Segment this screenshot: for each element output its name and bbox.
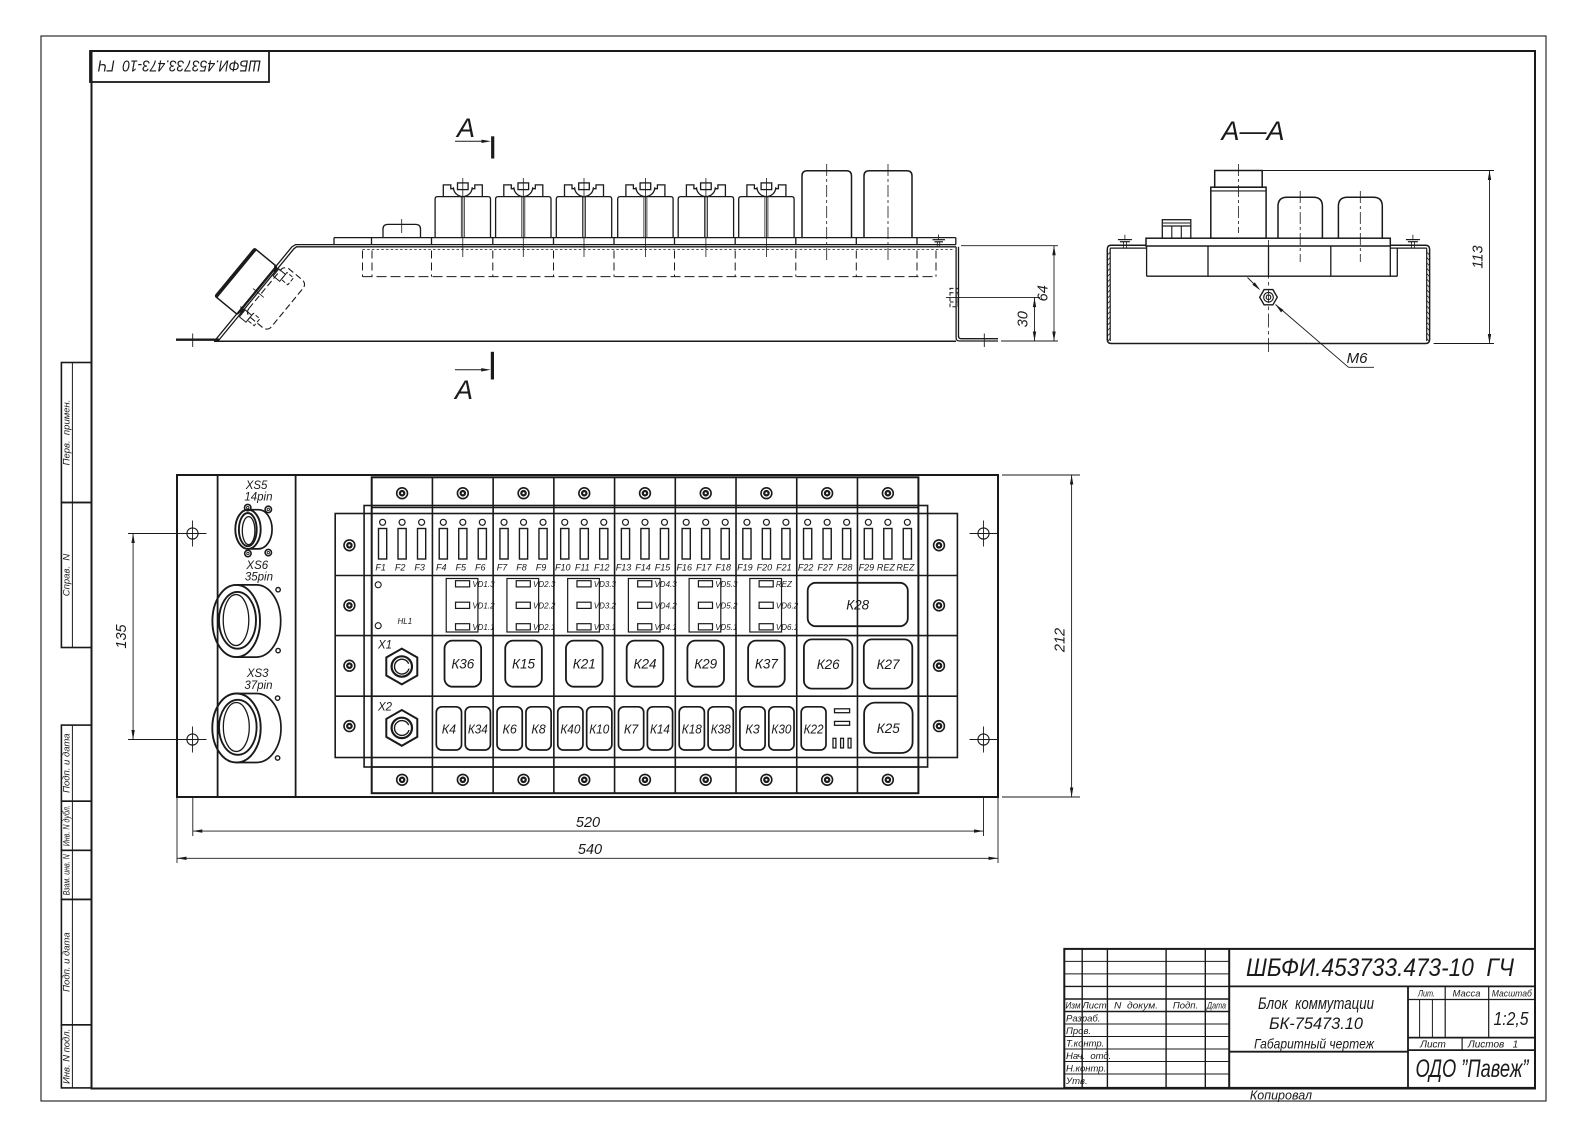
svg-text:F28: F28 — [837, 563, 853, 573]
svg-text:К40: К40 — [560, 723, 580, 737]
svg-text:F20: F20 — [757, 563, 773, 573]
svg-text:F19: F19 — [737, 563, 753, 573]
svg-text:К37: К37 — [755, 657, 778, 672]
svg-text:Н.контр.: Н.контр. — [1066, 1064, 1106, 1075]
svg-text:Блок коммутации: Блок коммутации — [1258, 994, 1374, 1013]
svg-text:К18: К18 — [682, 723, 702, 737]
svg-text:14pin: 14pin — [244, 492, 272, 504]
svg-text:VD4.2: VD4.2 — [654, 602, 677, 611]
svg-text:Масса: Масса — [1453, 989, 1481, 1000]
svg-text:Лист: Лист — [1419, 1039, 1446, 1050]
svg-text:Инв. N подл.: Инв. N подл. — [62, 1029, 73, 1084]
svg-text:F7: F7 — [497, 563, 508, 573]
svg-text:К14: К14 — [650, 723, 670, 737]
svg-text:К8: К8 — [531, 723, 545, 737]
svg-text:VD5.3: VD5.3 — [715, 580, 738, 589]
svg-text:F5: F5 — [456, 563, 467, 573]
svg-text:F18: F18 — [715, 563, 731, 573]
svg-text:К4: К4 — [442, 723, 456, 737]
svg-text:REZ: REZ — [877, 563, 896, 573]
svg-text:Перв. примен.: Перв. примен. — [62, 400, 73, 466]
svg-text:X2: X2 — [377, 702, 393, 714]
svg-text:Лист: Лист — [1081, 1001, 1107, 1012]
svg-text:VD3.3: VD3.3 — [594, 580, 617, 589]
svg-text:Подп.: Подп. — [1173, 1001, 1198, 1012]
svg-text:Инв. N дубл.: Инв. N дубл. — [62, 805, 73, 846]
svg-text:212: 212 — [1053, 628, 1069, 653]
svg-text:30: 30 — [1016, 311, 1032, 327]
svg-text:VD5.2: VD5.2 — [715, 602, 738, 611]
svg-text:F8: F8 — [516, 563, 527, 573]
svg-text:VD3.2: VD3.2 — [594, 602, 617, 611]
svg-text:К29: К29 — [694, 657, 717, 672]
svg-text:37pin: 37pin — [244, 680, 272, 692]
svg-text:Подп. и дата: Подп. и дата — [62, 932, 73, 991]
svg-text:64: 64 — [1036, 285, 1052, 301]
svg-text:К28: К28 — [846, 598, 869, 613]
svg-text:К26: К26 — [817, 657, 840, 672]
svg-text:F13: F13 — [616, 563, 632, 573]
svg-text:Взам. инв. N: Взам. инв. N — [62, 854, 73, 895]
svg-text:135: 135 — [114, 623, 130, 648]
svg-text:F15: F15 — [655, 563, 672, 573]
svg-text:N докум.: N докум. — [1114, 1001, 1158, 1012]
svg-text:Справ. N: Справ. N — [62, 554, 73, 597]
svg-text:К34: К34 — [468, 723, 488, 737]
svg-text:VD1.2: VD1.2 — [472, 602, 495, 611]
svg-text:F12: F12 — [594, 563, 610, 573]
svg-text:F16: F16 — [676, 563, 692, 573]
svg-text:Нач. отд.: Нач. отд. — [1066, 1051, 1111, 1062]
svg-text:К22: К22 — [804, 723, 824, 737]
svg-text:VD2.2: VD2.2 — [533, 602, 556, 611]
svg-text:К3: К3 — [745, 723, 759, 737]
svg-text:Утв.: Утв. — [1065, 1076, 1088, 1087]
svg-text:БК-75473.10: БК-75473.10 — [1269, 1014, 1364, 1033]
svg-text:Т.контр.: Т.контр. — [1066, 1039, 1104, 1050]
svg-text:F11: F11 — [575, 563, 590, 573]
svg-text:F29: F29 — [859, 563, 875, 573]
svg-text:F9: F9 — [536, 563, 547, 573]
svg-text:VD5.1: VD5.1 — [715, 623, 737, 632]
svg-text:113: 113 — [1471, 245, 1487, 268]
svg-text:F21: F21 — [776, 563, 792, 573]
svg-text:К7: К7 — [624, 723, 639, 737]
svg-text:VD2.3: VD2.3 — [533, 580, 556, 589]
svg-text:К6: К6 — [502, 723, 516, 737]
svg-text:HL1: HL1 — [398, 617, 413, 626]
svg-text:ШБФИ.453733.473-10 ГЧ: ШБФИ.453733.473-10 ГЧ — [98, 57, 261, 74]
svg-text:F14: F14 — [635, 563, 651, 573]
svg-text:A: A — [453, 375, 473, 405]
svg-text:A—A: A—A — [1219, 116, 1284, 146]
svg-text:Пров.: Пров. — [1066, 1026, 1091, 1037]
svg-text:К10: К10 — [589, 723, 609, 737]
svg-text:ШБФИ.453733.473-10 ГЧ: ШБФИ.453733.473-10 ГЧ — [1246, 954, 1514, 982]
svg-text:К15: К15 — [512, 657, 535, 672]
svg-text:520: 520 — [576, 815, 600, 831]
svg-text:VD4.1: VD4.1 — [654, 623, 676, 632]
svg-text:VD2.1: VD2.1 — [533, 623, 555, 632]
svg-text:VD3.1: VD3.1 — [594, 623, 616, 632]
svg-text:ОДО ”Павеж”: ОДО ”Павеж” — [1416, 1055, 1530, 1083]
svg-text:XS6: XS6 — [245, 560, 268, 572]
svg-text:VD4.3: VD4.3 — [654, 580, 677, 589]
svg-text:VD1.3: VD1.3 — [472, 580, 495, 589]
svg-text:Габаритный чертеж: Габаритный чертеж — [1254, 1036, 1375, 1052]
svg-text:Масштаб: Масштаб — [1492, 989, 1533, 1000]
svg-text:VD6.1: VD6.1 — [776, 623, 798, 632]
svg-text:A: A — [455, 113, 475, 143]
svg-text:F10: F10 — [555, 563, 571, 573]
svg-text:REZ: REZ — [896, 563, 915, 573]
svg-text:X1: X1 — [377, 640, 392, 652]
svg-text:К27: К27 — [877, 657, 900, 672]
svg-text:Копировал: Копировал — [1250, 1089, 1312, 1103]
svg-text:F17: F17 — [696, 563, 713, 573]
svg-text:VD6.2: VD6.2 — [776, 602, 799, 611]
svg-text:К36: К36 — [451, 657, 474, 672]
svg-text:F2: F2 — [395, 563, 406, 573]
svg-text:VD1.1: VD1.1 — [472, 623, 494, 632]
svg-text:К21: К21 — [573, 657, 596, 672]
svg-text:35pin: 35pin — [245, 572, 273, 584]
svg-text:F4: F4 — [436, 563, 447, 573]
svg-text:F22: F22 — [798, 563, 814, 573]
svg-text:XS5: XS5 — [245, 480, 268, 492]
svg-text:Изм: Изм — [1066, 1001, 1081, 1012]
svg-text:540: 540 — [578, 842, 602, 858]
svg-text:М6: М6 — [1347, 350, 1368, 367]
svg-text:Дата: Дата — [1206, 1001, 1226, 1012]
svg-text:Лит.: Лит. — [1417, 989, 1435, 1000]
svg-text:F3: F3 — [414, 563, 425, 573]
svg-text:К30: К30 — [771, 723, 791, 737]
svg-text:Подп. и дата: Подп. и дата — [62, 733, 73, 792]
svg-text:F1: F1 — [375, 563, 386, 573]
svg-text:К24: К24 — [633, 657, 656, 672]
svg-text:Разраб.: Разраб. — [1066, 1014, 1100, 1025]
svg-text:XS3: XS3 — [246, 668, 269, 680]
svg-text:1:2,5: 1:2,5 — [1494, 1009, 1530, 1029]
svg-text:К38: К38 — [711, 723, 731, 737]
svg-text:К25: К25 — [877, 721, 900, 736]
svg-text:Листов 1: Листов 1 — [1467, 1039, 1518, 1050]
svg-text:F27: F27 — [817, 563, 834, 573]
svg-text:F6: F6 — [475, 563, 486, 573]
svg-text:REZ: REZ — [776, 580, 793, 589]
